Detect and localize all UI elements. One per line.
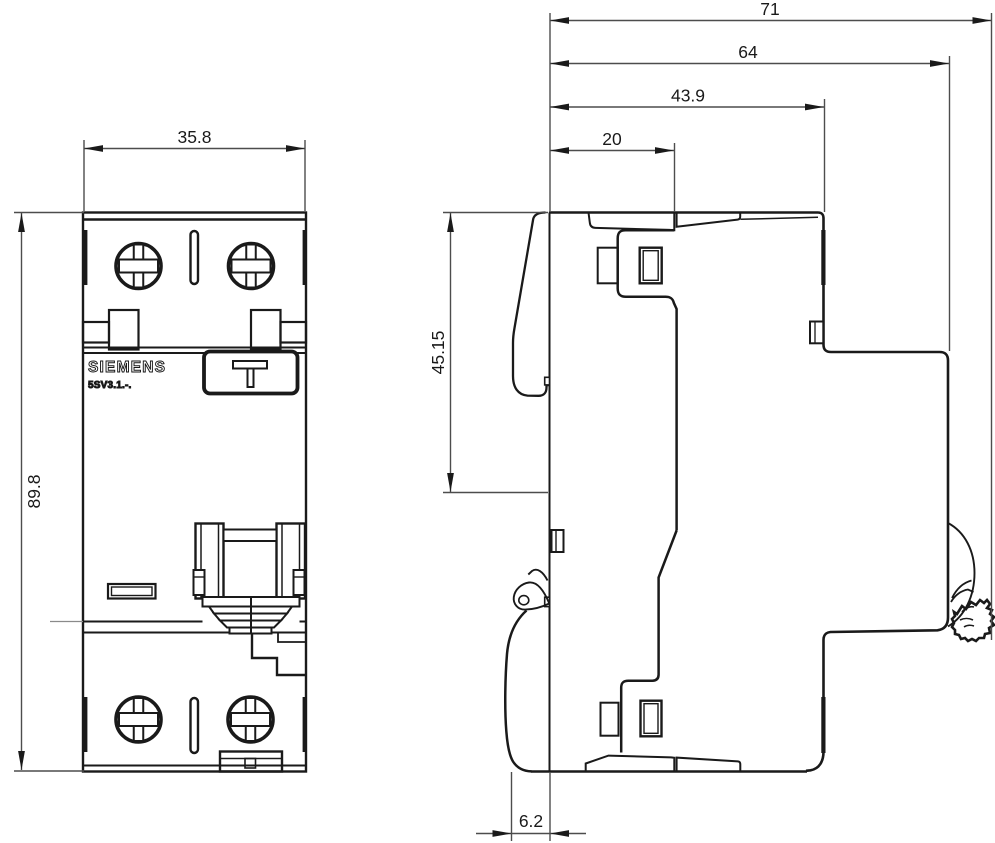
dim-arrow: [930, 60, 949, 67]
body-back-profile: [806, 213, 948, 771]
side-view: [505, 213, 994, 772]
dim-arrow: [84, 145, 103, 152]
dimension-drawing-page: SIEMENS 5SV3.1.-.: [0, 0, 995, 843]
dim-arrow: [973, 17, 992, 24]
dim-arrow: [655, 147, 674, 154]
terminal-screw-top-right: [229, 244, 274, 289]
dim-arrow: [550, 830, 569, 837]
dim-arrow: [805, 104, 824, 111]
dim-label-cutout-height: 45.15: [428, 331, 448, 375]
terminal-block-bottom-side: [621, 531, 676, 753]
terminal-screw-bottom-right: [228, 697, 273, 742]
terminal-screw-bottom-left: [116, 697, 161, 742]
brand-label: SIEMENS: [88, 359, 166, 376]
test-button-assembly: [194, 524, 306, 599]
dim-front-width: 35.8: [84, 127, 305, 211]
din-clip-upper: [513, 213, 550, 396]
test-slot: [108, 584, 156, 599]
terminal-step-detail: [252, 633, 306, 675]
clip-notch-upper: [545, 377, 550, 385]
dim-arrow: [550, 17, 569, 24]
dim-label-front-width: 35.8: [177, 127, 211, 147]
dim-total-depth: 71: [550, 0, 992, 24]
din-clip-lower: [505, 570, 549, 772]
terminal-screw-side-bottom: [641, 701, 662, 737]
terminal-lug-left: [83, 310, 139, 350]
dim-label-front-depth: 43.9: [671, 86, 705, 106]
dim-label-body-depth: 64: [738, 42, 758, 62]
dim-front-section: 20: [550, 129, 674, 154]
wire-slot-top: [191, 231, 199, 284]
model-label: 5SV3.1.-.: [88, 380, 132, 391]
dim-label-front-section: 20: [602, 129, 622, 149]
dim-arrow: [18, 213, 25, 232]
dim-front-depth: 43.9: [550, 86, 824, 111]
dim-arrow: [493, 830, 512, 837]
dim-label-front-height: 89.8: [24, 474, 44, 508]
terminal-block-top-side: [618, 230, 677, 530]
terminal-cover-bottom: [220, 752, 282, 772]
terminal-opening-top-side: [598, 248, 618, 284]
terminal-opening-bottom-side: [601, 703, 619, 736]
clip-eyelet: [519, 596, 529, 605]
terminal-screw-top-left: [116, 244, 161, 289]
dim-arrow: [550, 147, 569, 154]
front-view: SIEMENS 5SV3.1.-.: [50, 213, 306, 772]
mounting-feet: [586, 756, 741, 772]
front-tab: [552, 530, 564, 552]
dim-arrow: [550, 60, 569, 67]
terminal-screw-side-top: [640, 248, 662, 284]
dim-arrow: [550, 104, 569, 111]
dim-body-depth: 64: [550, 42, 949, 67]
dim-front-height: 89.8: [14, 213, 84, 772]
edge-marks: [84, 230, 306, 752]
dim-arrow: [18, 751, 25, 770]
front-outline: [83, 213, 306, 772]
dim-label-total-depth: 71: [760, 0, 779, 19]
wire-slot-bottom: [191, 698, 199, 753]
side-tab: [810, 322, 823, 344]
toggle-side-profile: [589, 213, 819, 231]
dim-arrow: [447, 473, 454, 492]
dim-clip-offset: 6.2: [476, 772, 586, 841]
dimension-drawing: SIEMENS 5SV3.1.-.: [0, 0, 995, 843]
terminal-lug-right: [251, 310, 306, 350]
sealing-boss: [948, 523, 975, 627]
dim-cutout-height: 45.15: [428, 213, 548, 493]
dim-arrow: [447, 213, 454, 232]
dim-arrow: [286, 145, 305, 152]
dim-label-clip-offset: 6.2: [519, 811, 543, 831]
test-button-ridges: [203, 597, 300, 634]
